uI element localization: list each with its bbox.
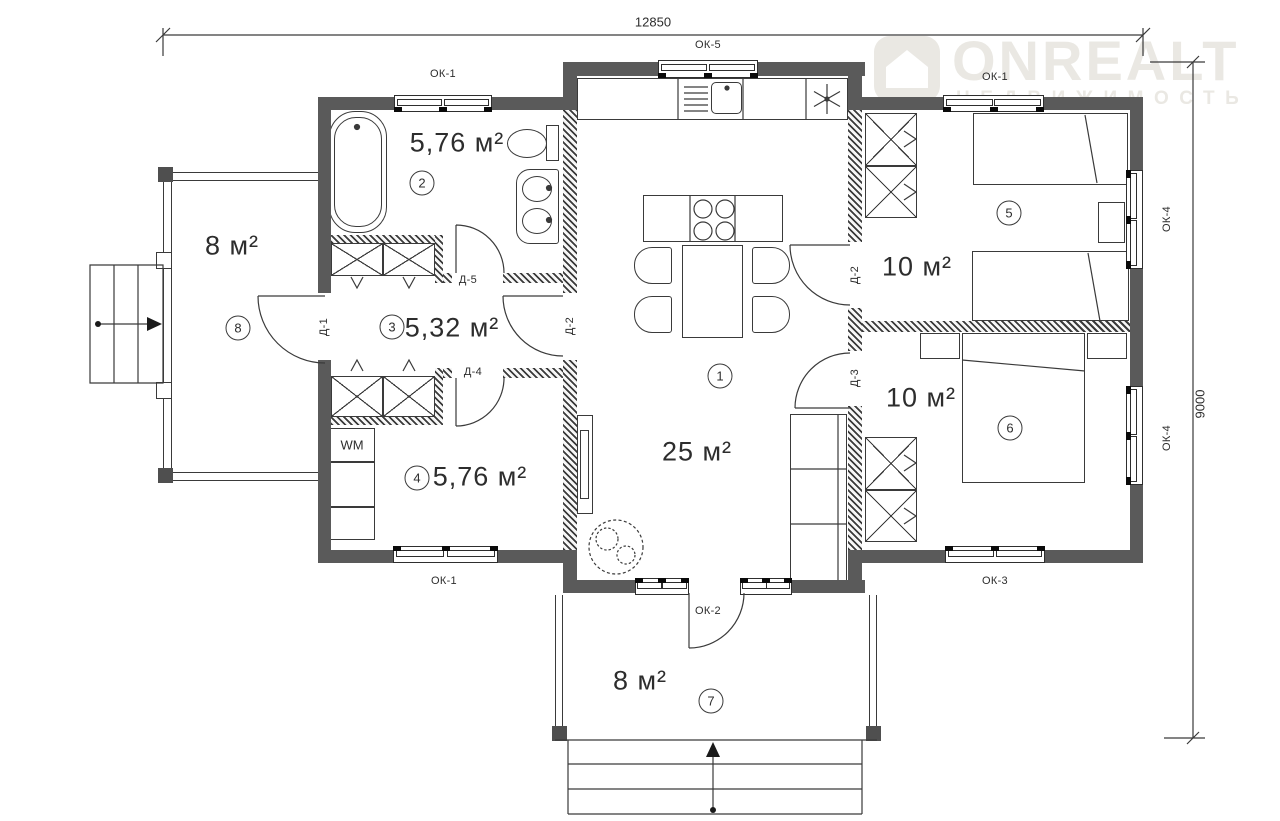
label-door-d5: Д-5 [459,274,477,286]
label-window-ok5: ОК-5 [695,39,721,51]
sofa-lines [790,415,847,580]
label-door-d4: Д-4 [464,366,482,378]
room-number-bedroom-bottom: 6 [998,416,1023,441]
door-arc-d5 [456,225,504,273]
door-arc-ok2 [689,593,744,648]
label-window-ok4-lower: ОК-4 [1161,425,1173,451]
room-number-hall: 3 [380,315,405,340]
dimension-depth-label: 9000 [1193,390,1208,419]
bed-fold-lines [962,115,1100,371]
door-arc-d2-bedroom [790,245,850,305]
door-arc-d1 [258,296,325,363]
floor-plan: ONREALT НЕДВИЖИМОСТЬ [0,0,1280,821]
dimension-lines [156,28,1205,744]
room-number-porch-front: 7 [699,689,724,714]
kitchen-lines [678,78,806,242]
room-number-bedroom-top: 5 [997,201,1022,226]
door-arc-d2-hall [503,296,563,356]
door-arc-d4 [456,378,504,426]
side-stairs [90,265,163,383]
room-living-area: 25 м² [662,437,732,468]
label-window-ok1-bottom-left: ОК-1 [431,575,457,587]
room-number-bathroom: 2 [410,171,435,196]
room-laundry-area: 5,76 м² [433,462,528,493]
label-door-d2-bedroom: Д-2 [849,266,861,284]
label-window-ok1-top-right: ОК-1 [982,71,1008,83]
label-door-d3: Д-3 [849,369,861,387]
room-bedroom-bottom-area: 10 м² [886,383,956,414]
room-hall-area: 5,32 м² [405,313,500,344]
label-door-ok2: ОК-2 [695,605,721,617]
label-door-d2-hall: Д-2 [564,317,576,335]
plant-icon [589,520,643,574]
label-door-d1: Д-1 [318,318,330,336]
label-window-ok4-upper: ОК-4 [1161,206,1173,232]
label-washing-machine: WM [340,438,363,453]
room-number-porch-side: 8 [226,316,251,341]
front-stairs [555,740,877,814]
label-window-ok3: ОК-3 [982,575,1008,587]
room-number-living: 1 [708,364,733,389]
room-bedroom-top-area: 10 м² [882,252,952,283]
dimension-width-label: 12850 [635,15,671,30]
door-arc-d3 [795,353,850,408]
room-porch-front-area: 8 м² [613,666,667,697]
linework-overlay [0,0,1280,821]
room-number-laundry: 4 [405,466,430,491]
room-porch-side-area: 8 м² [205,231,259,262]
label-window-ok1-top-left: ОК-1 [430,68,456,80]
room-bathroom-area: 5,76 м² [410,128,505,159]
boiler-icon [814,84,840,114]
